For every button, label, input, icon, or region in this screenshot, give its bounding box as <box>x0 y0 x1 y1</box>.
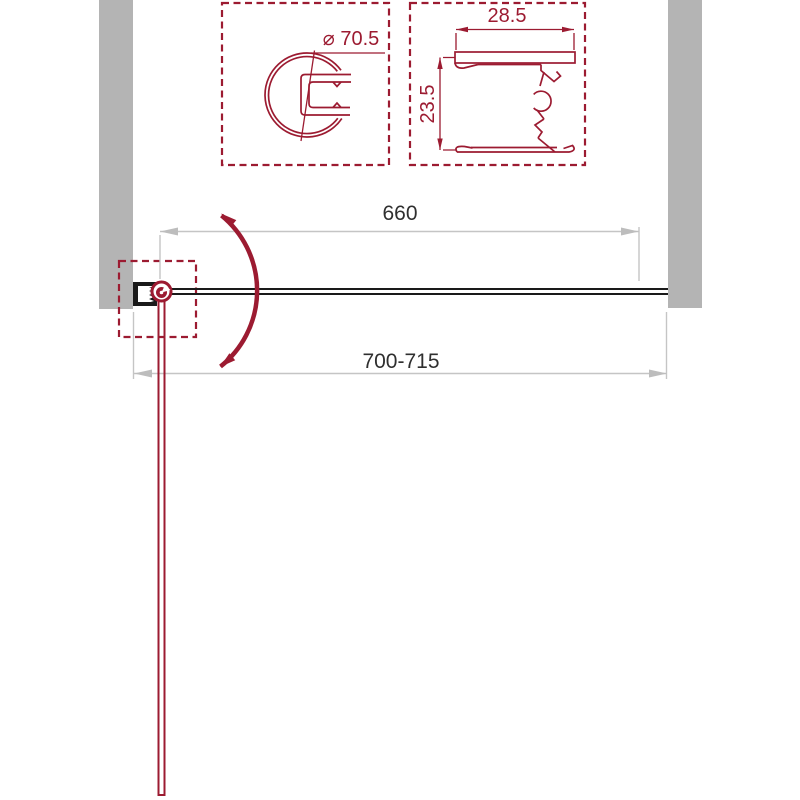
profile-width-label: 28.5 <box>477 6 537 26</box>
opening-width-label: 700-715 <box>356 351 446 372</box>
dim-23-5 <box>437 58 456 151</box>
glass-width-label: 660 <box>370 203 430 224</box>
drawing-layer <box>0 0 800 800</box>
dim-line-660 <box>160 227 639 281</box>
glass-panel-closed <box>171 288 668 295</box>
swing-arc <box>220 214 257 368</box>
profile-depth-label: 23.5 <box>418 80 438 128</box>
knob-profile-drawing <box>265 51 385 142</box>
technical-drawing-canvas: ⌀ 70.5 28.5 23.5 660 700-715 <box>0 0 800 800</box>
wall-profile-drawing <box>437 27 575 152</box>
diameter-line <box>301 51 315 142</box>
dim-28-5 <box>456 27 574 50</box>
wall-left <box>99 0 133 309</box>
knob-diameter-label: ⌀ 70.5 <box>315 29 387 49</box>
wall-right <box>668 0 702 308</box>
door-panel-open <box>158 300 166 796</box>
hinge-pivot <box>152 282 171 301</box>
